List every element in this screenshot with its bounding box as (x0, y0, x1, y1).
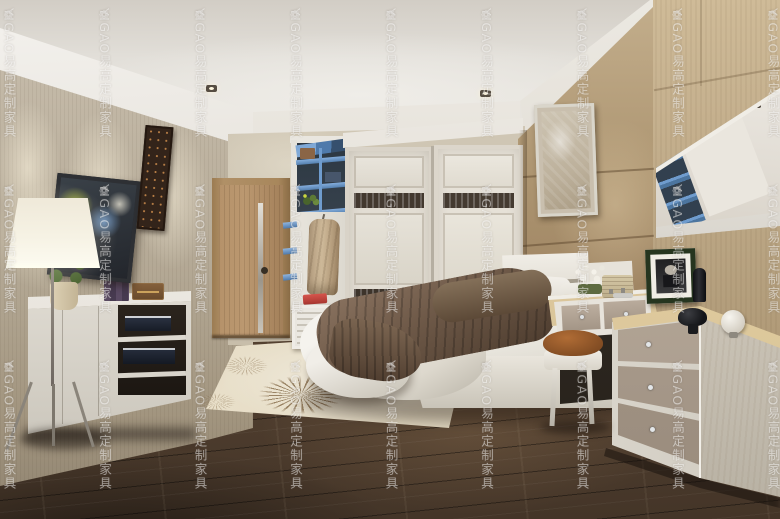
door (219, 185, 283, 335)
shelf-books (125, 316, 171, 331)
door-floor-shadow (212, 335, 290, 339)
hanging-robe (307, 218, 341, 295)
sideboard-door-seam (62, 308, 63, 424)
drawer-knob (624, 312, 628, 316)
ornament-base (729, 332, 738, 338)
mushroom-stem (688, 324, 698, 334)
sideboard-door-seam (98, 306, 99, 416)
shelf-box (300, 148, 315, 159)
drawer-knob (650, 427, 655, 432)
drawer-knob (646, 342, 651, 347)
chest-corner-highlight (699, 310, 701, 478)
wooden-box (132, 283, 164, 300)
lamp-tripod-leg (52, 384, 55, 446)
wall-artwork (534, 103, 598, 217)
flower-stems (578, 284, 602, 294)
black-bottle (693, 268, 706, 302)
artwork-canvas (541, 110, 590, 210)
drawer-knob (648, 385, 653, 390)
photo (655, 258, 686, 293)
ceiling-spotlight (480, 90, 491, 97)
wall-panel-seam (700, 0, 702, 86)
door-panel (354, 213, 424, 285)
shelf-box (325, 172, 341, 182)
shelf-books (123, 348, 175, 364)
lamp-shadow (20, 428, 108, 450)
round-ornament (721, 310, 745, 334)
door-panel (443, 154, 514, 188)
glass-tray (613, 293, 633, 298)
stool-cushion (543, 330, 603, 356)
door-panel (354, 156, 424, 188)
shelf-plant (299, 190, 321, 206)
bedroom-render: ❁YIGAO易高定制家具❁YIGAO易高定制家具❁YIGAO易高定制家具❁YIG… (0, 0, 780, 519)
lamp-pole (51, 268, 54, 386)
photo-frame (645, 248, 697, 304)
red-hat (303, 293, 328, 305)
drawer-knob (580, 315, 584, 319)
mosaic-band (354, 193, 424, 208)
ceiling-spotlight (206, 85, 217, 92)
mosaic-band (443, 193, 514, 208)
door-handle (261, 267, 268, 274)
lamp-shade (6, 198, 100, 268)
